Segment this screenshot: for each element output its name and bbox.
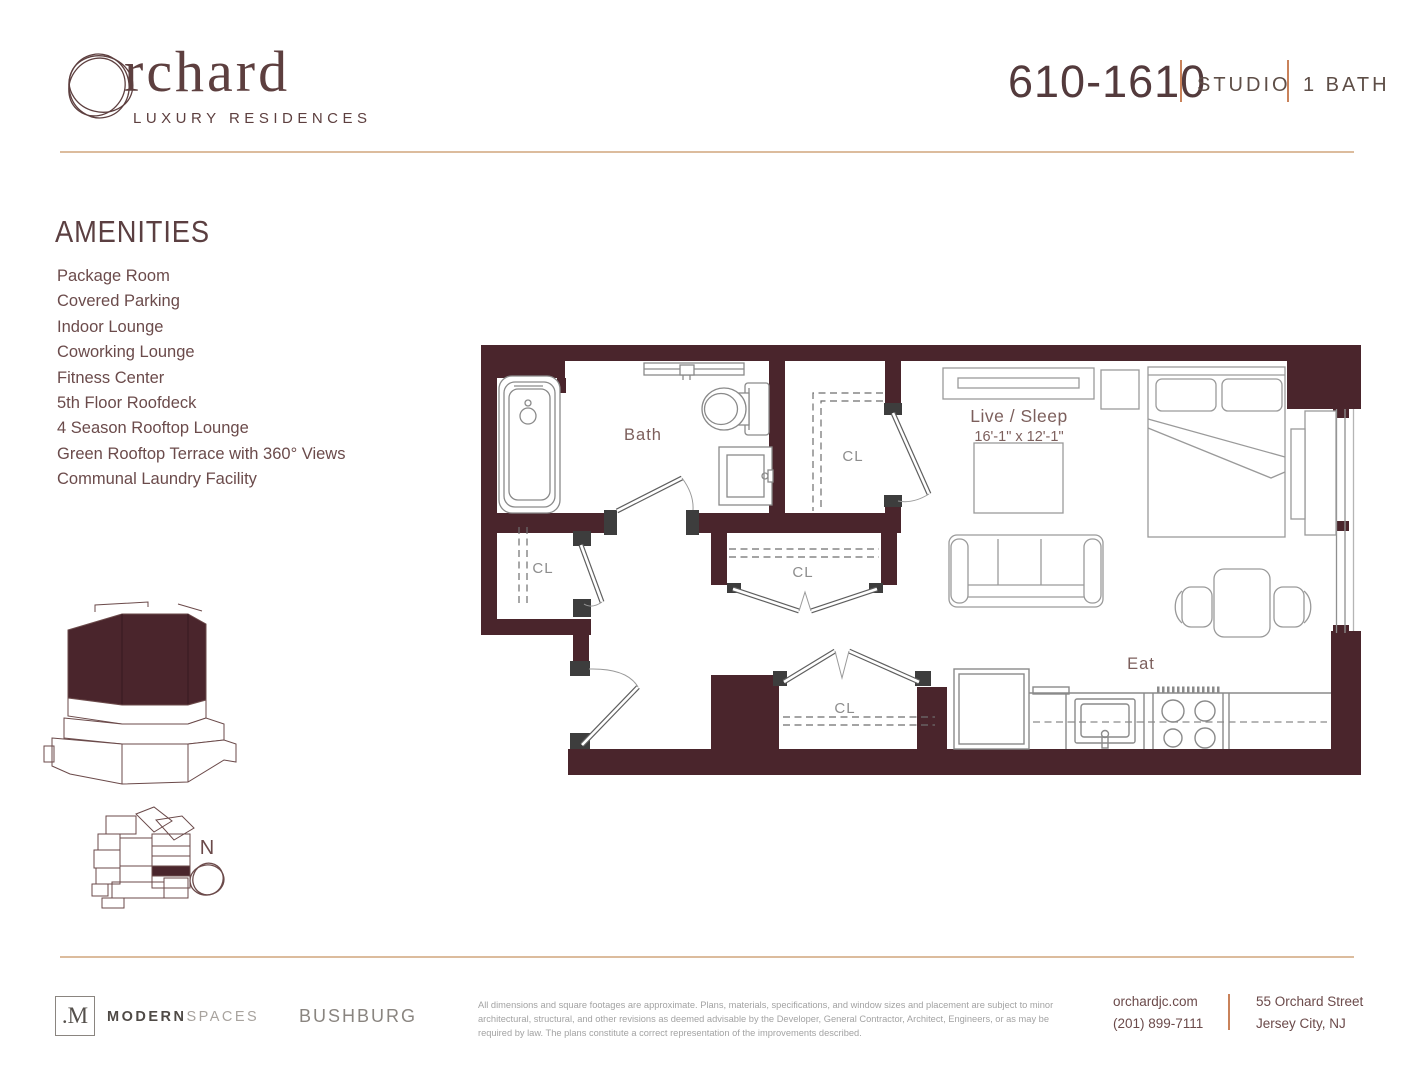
compass-north-icon: N (184, 836, 244, 902)
bushburg-logo: BUSHBURG (299, 1006, 417, 1027)
room-label-closet-4: CL (834, 700, 855, 717)
side-table (1101, 370, 1139, 409)
brand-logo-text: rchard (124, 38, 290, 105)
room-label-bath: Bath (624, 426, 662, 444)
header-divider-line (60, 151, 1354, 153)
footer-contact-divider (1228, 994, 1230, 1030)
room-label-eat: Eat (1127, 655, 1155, 673)
amenity-item: Green Rooftop Terrace with 360° Views (57, 442, 345, 467)
kitchen-sink (1075, 699, 1135, 748)
amenity-item: Communal Laundry Facility (57, 467, 345, 492)
sofa (949, 535, 1103, 607)
amenities-list: Package Room Covered Parking Indoor Loun… (57, 264, 345, 493)
amenity-item: Fitness Center (57, 366, 345, 391)
compass-n-label: N (200, 837, 214, 859)
modern-spaces-monogram: .M (62, 1003, 88, 1029)
toilet (702, 383, 769, 435)
amenity-item: Coworking Lounge (57, 340, 345, 365)
unit-type: STUDIO (1197, 74, 1291, 97)
website-text: orchardjc.com (1113, 994, 1198, 1009)
amenity-item: 5th Floor Roofdeck (57, 391, 345, 416)
room-label-live-sleep: Live / Sleep (970, 406, 1067, 426)
legal-disclaimer: All dimensions and square footages are a… (478, 999, 1070, 1041)
building-icon (40, 590, 260, 800)
address-line-1: 55 Orchard Street (1256, 994, 1363, 1009)
unit-header-divider-2 (1287, 60, 1289, 102)
bed (1148, 367, 1285, 537)
modern-spaces-bold: MODERN (107, 1009, 186, 1025)
dresser (1291, 411, 1336, 535)
unit-number: 610-1610 (1008, 56, 1206, 108)
room-dims-live-sleep: 16'-1" x 12'-1" (974, 429, 1063, 445)
kitchen (954, 669, 1331, 749)
unit-header-divider (1180, 60, 1182, 102)
amenity-item: Package Room (57, 264, 345, 289)
dining-set (1175, 569, 1311, 637)
amenity-item: 4 Season Rooftop Lounge (57, 416, 345, 441)
stove (1153, 690, 1223, 750)
modern-spaces-logo: MODERNSPACES (107, 1009, 259, 1025)
amenity-item: Indoor Lounge (57, 315, 345, 340)
modern-spaces-light: SPACES (186, 1009, 259, 1025)
unit-bath: 1 BATH (1303, 74, 1390, 97)
bath-shelf (644, 363, 744, 380)
coffee-table (974, 443, 1063, 513)
address-line-2: Jersey City, NJ (1256, 1016, 1346, 1031)
modern-spaces-monogram-icon: .M (55, 996, 95, 1036)
vanity-sink (719, 447, 773, 505)
room-label-closet-2: CL (532, 560, 553, 577)
amenity-item: Covered Parking (57, 289, 345, 314)
media-console (943, 368, 1094, 399)
room-label-closet-3: CL (792, 564, 813, 581)
room-label-closet-1: CL (842, 448, 863, 465)
phone-text: (201) 899-7111 (1113, 1016, 1203, 1031)
brand-tagline: LUXURY RESIDENCES (133, 110, 372, 127)
amenities-heading: AMENITIES (55, 214, 210, 250)
floorplan-drawing: Bath CL CL CL CL Live / Sleep 16'-1" x 1… (481, 345, 1361, 780)
footer-divider-line (60, 956, 1354, 958)
bathtub (499, 376, 560, 513)
floorplan-flyer-page: rchard LUXURY RESIDENCES 610-1610 STUDIO… (0, 0, 1414, 1074)
